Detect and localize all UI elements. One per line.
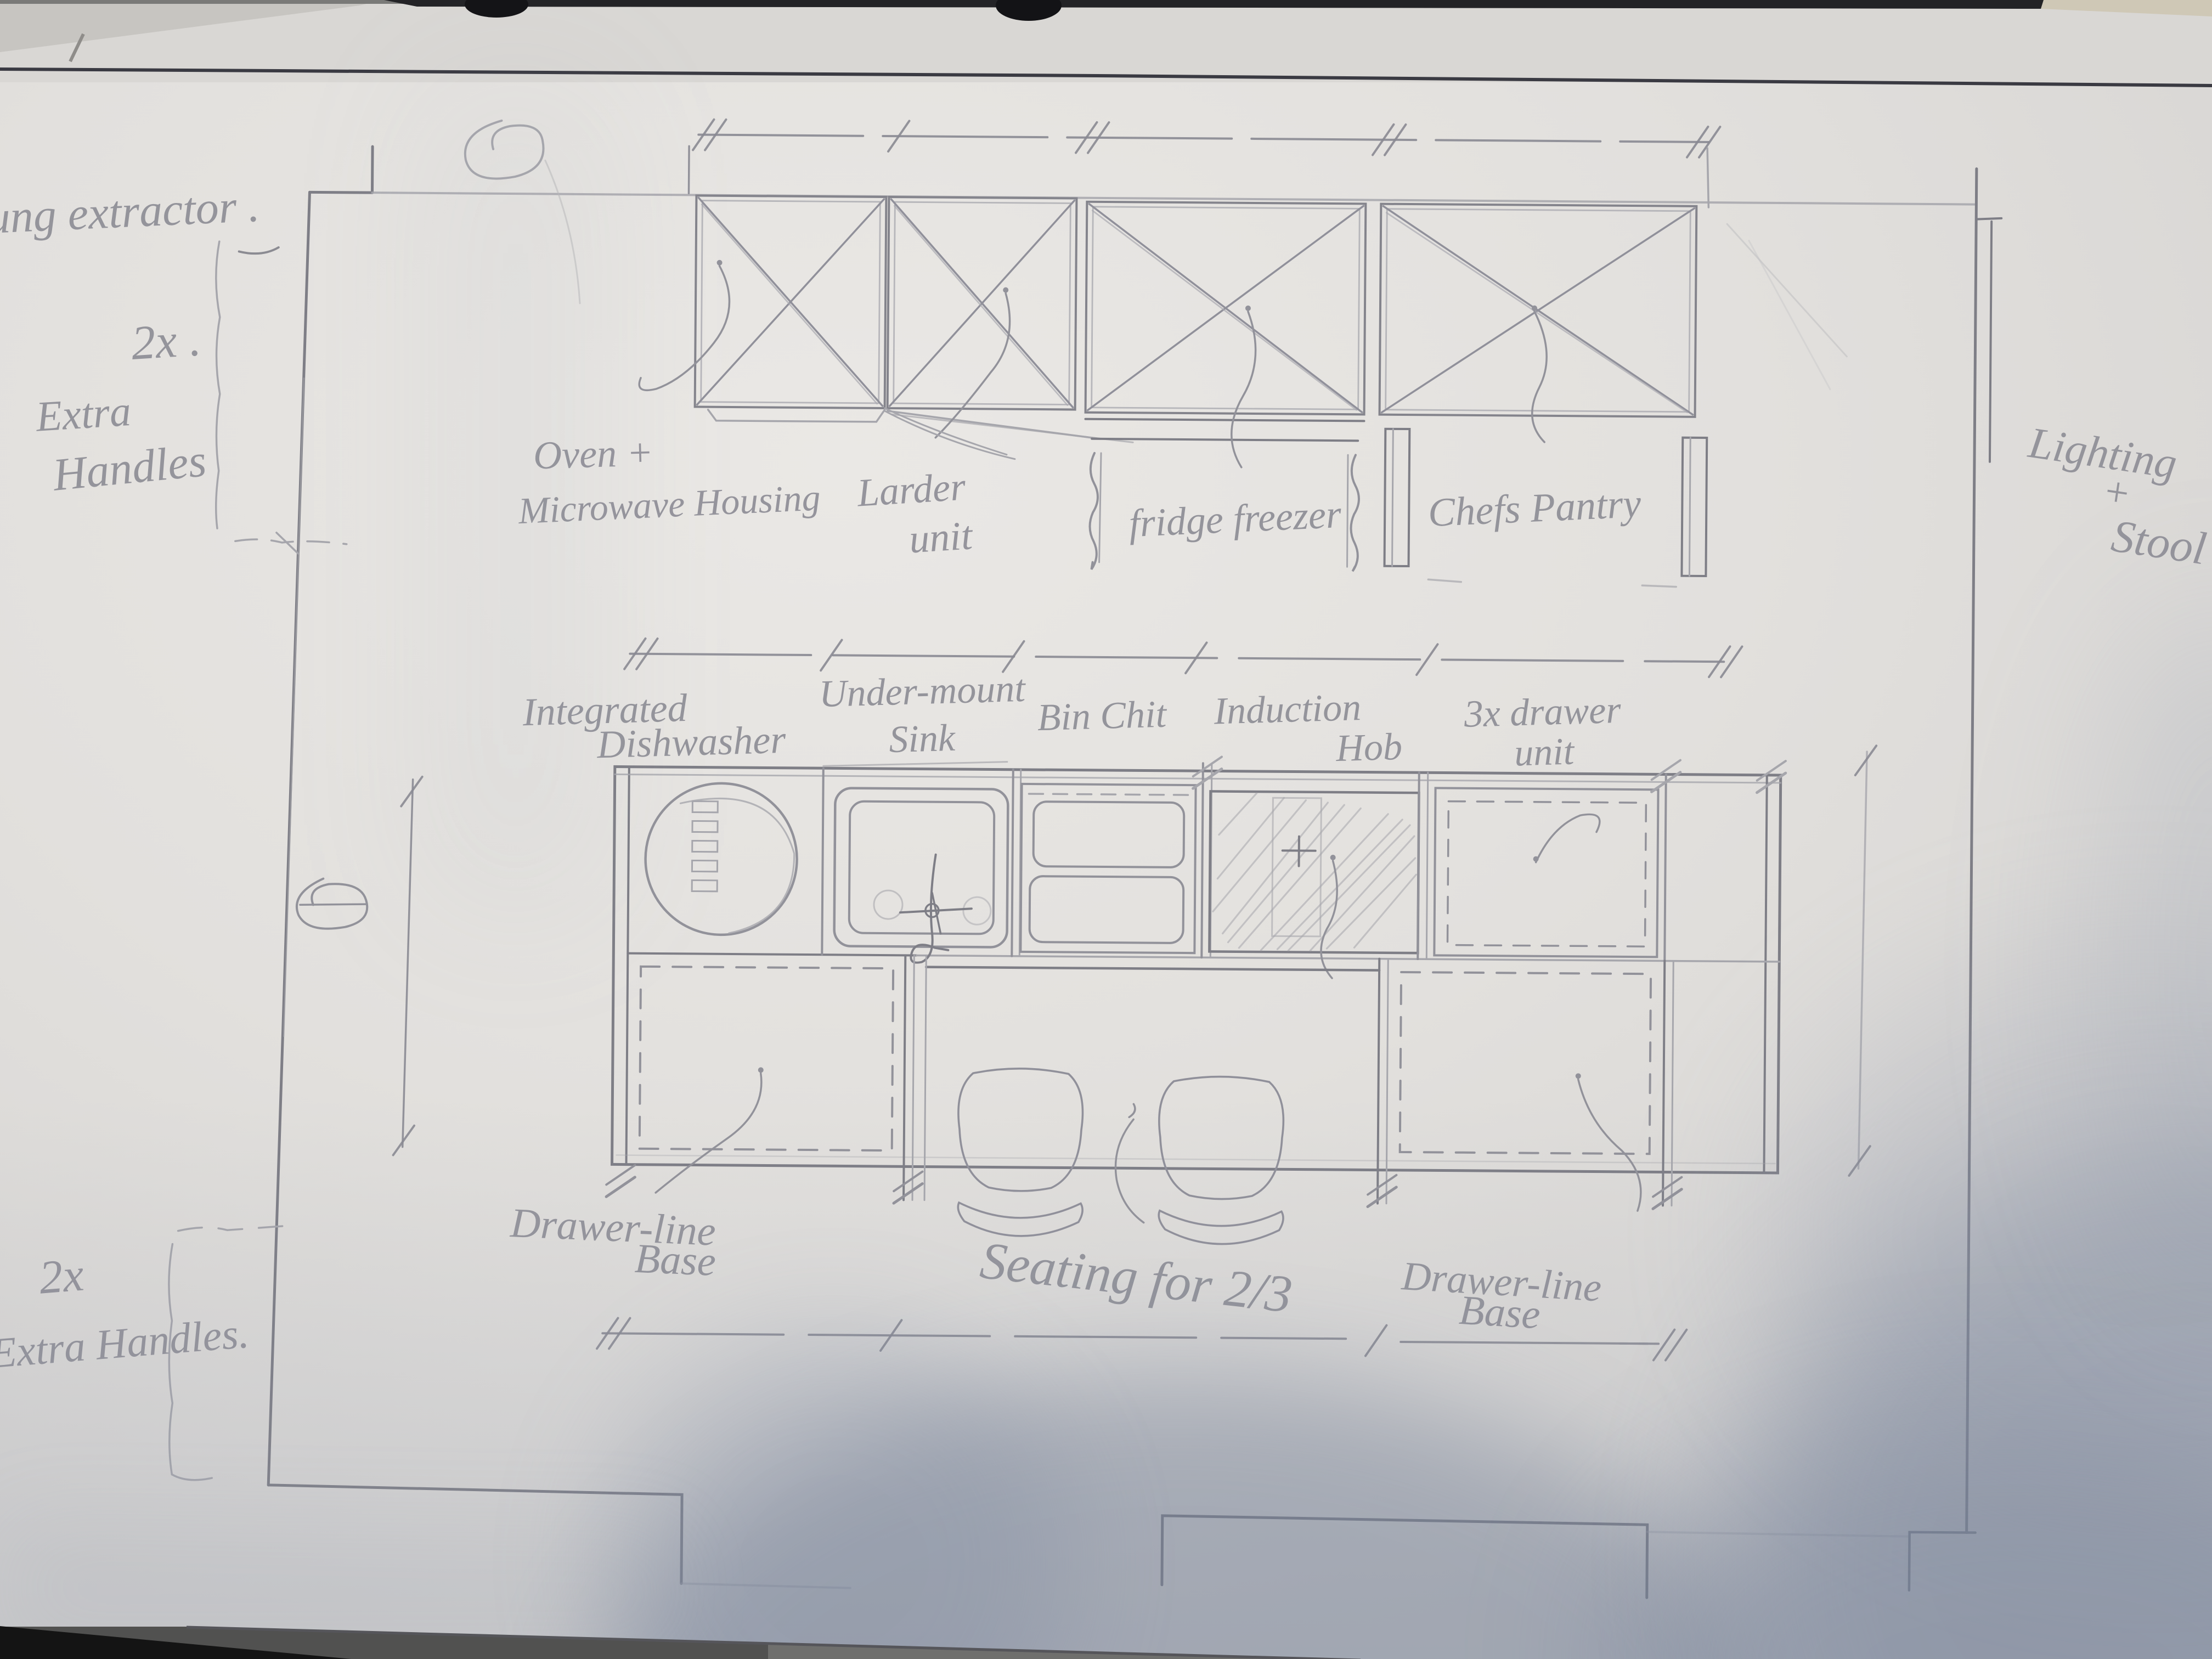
svg-text:Under-mount: Under-mount <box>819 668 1026 715</box>
svg-text:unit: unit <box>908 513 975 562</box>
svg-text:Extra: Extra <box>34 387 132 441</box>
svg-text:Bin Chit: Bin Chit <box>1037 693 1168 740</box>
svg-text:unit: unit <box>1514 730 1576 774</box>
svg-text:Hob: Hob <box>1335 726 1403 770</box>
svg-text:Chefs Pantry: Chefs Pantry <box>1427 481 1642 535</box>
svg-text:2x .: 2x . <box>129 313 202 370</box>
svg-text:3x drawer: 3x drawer <box>1463 689 1622 736</box>
svg-text:Induction: Induction <box>1213 686 1362 732</box>
svg-text:Sink: Sink <box>888 717 957 761</box>
svg-text:Dishwasher: Dishwasher <box>596 718 787 767</box>
svg-text:Larder: Larder <box>855 464 967 515</box>
